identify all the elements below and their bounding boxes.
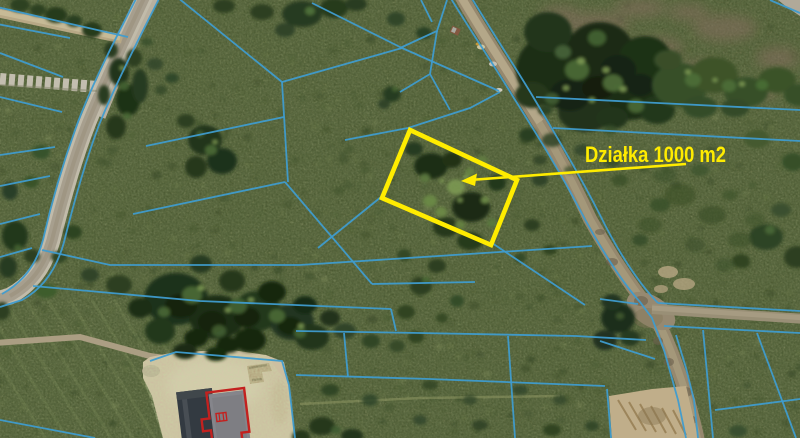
svg-text:Działka 1000 m2: Działka 1000 m2 — [585, 142, 726, 167]
